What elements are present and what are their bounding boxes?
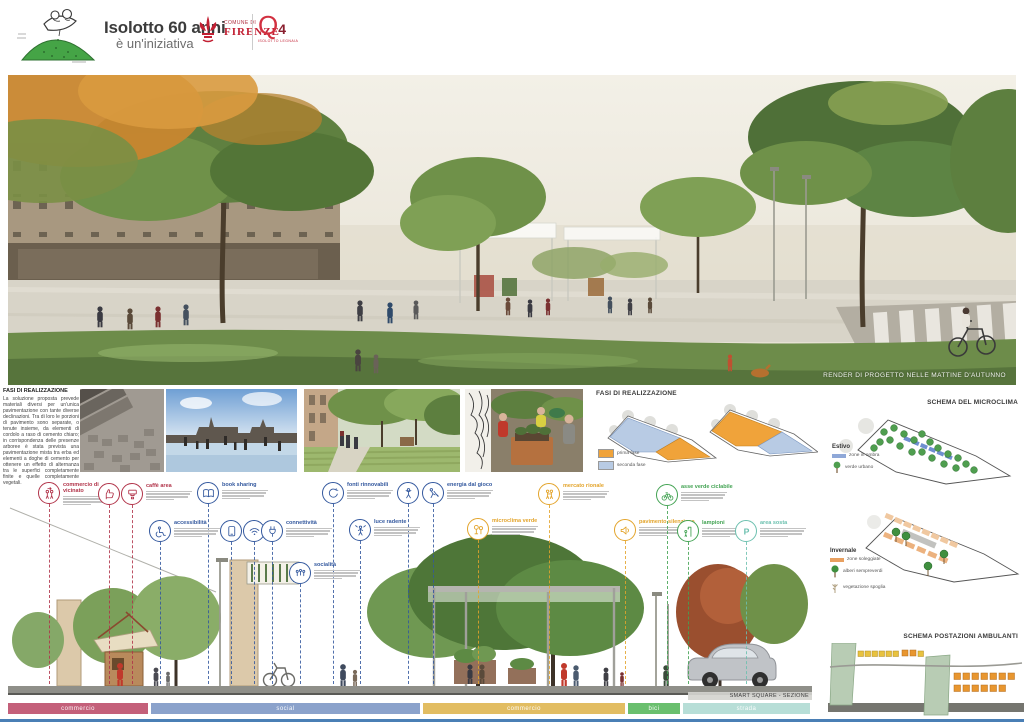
ombra-label: zone in ombra [849, 453, 879, 458]
feature-label-text: mercato rionale [563, 483, 604, 489]
feature-label: energia dal gioco [447, 482, 503, 499]
feature-label: mercato rionale [563, 483, 619, 500]
fasi-text-title: FASI DI REALIZZAZIONE [3, 388, 79, 394]
feature-label: book sharing [222, 482, 278, 499]
program-bar-segment: commercio [8, 703, 148, 714]
tree-legend-icon [832, 461, 842, 473]
spoglia-label: vegetazione spoglia [843, 585, 885, 590]
photo-community-gardening [465, 389, 583, 472]
feature-label-text: energia dal gioco [447, 482, 492, 488]
program-bar-label: commercio [61, 706, 95, 712]
feature-label-text: fonti rinnovabili [347, 482, 388, 488]
ambulanti-title: SCHEMA POSTAZIONI AMBULANTI [850, 633, 1018, 640]
feature-description-placeholder [347, 490, 403, 500]
feature-label-text: asse verde ciclabile [681, 484, 733, 490]
q4-logo: Q4 ISOLOTTO LEGNAIA [258, 14, 298, 43]
program-bar-label: strada [737, 706, 757, 712]
program-bar-segment: commercio [423, 703, 625, 714]
bare-tree-legend-icon [830, 581, 840, 594]
invernale-label: Invernale [830, 548, 885, 554]
microclima-estivo-legend: Estivo zone in ombra verde urbano [832, 444, 879, 473]
fase1-swatch [598, 449, 614, 458]
photo-water-mirror-plaza [166, 389, 297, 472]
feature-description-placeholder [563, 491, 619, 501]
feature-label: fonti rinnovabili [347, 482, 403, 499]
photo-stone-paving [80, 389, 164, 472]
ombra-swatch [832, 454, 846, 458]
sole-swatch [830, 558, 844, 562]
poster: Isolotto 60 anni è un'iniziativa COMUNE … [0, 0, 1024, 723]
ambulanti-diagram [828, 643, 1024, 717]
feature-label: caffè area [146, 483, 202, 500]
poster-bottom-edge [0, 719, 1024, 722]
program-bar-label: commercio [507, 706, 541, 712]
header-divider [252, 14, 253, 50]
photo-green-boulevard [304, 389, 460, 472]
q4-subtitle: ISOLOTTO LEGNAIA [258, 39, 298, 43]
isolotto-60-logo-icon [14, 4, 100, 66]
fase1-label: prima fase [617, 451, 639, 456]
program-bar-segment: bici [628, 703, 680, 714]
feature-description-placeholder [222, 490, 278, 500]
q4-letter: Q [258, 10, 278, 40]
feature-description-placeholder [447, 490, 503, 500]
feature-label: asse verde ciclabile [681, 484, 737, 501]
section-title: SMART SQUARE - SEZIONE [688, 692, 812, 700]
fase2-label: seconda fase [617, 463, 646, 468]
sole-label: zone soleggiate [847, 557, 881, 562]
program-bar-segment: social [151, 703, 420, 714]
program-bar-label: bici [648, 706, 659, 712]
program-bar-segment: strada [683, 703, 810, 714]
microclima-title: SCHEMA DEL MICROCLIMA [860, 399, 1018, 406]
verde-label: verde urbano [845, 465, 873, 470]
section-drawing [8, 500, 818, 700]
feature-description-placeholder [146, 491, 202, 501]
fasi-diagram-title: FASI DI REALIZZAZIONE [596, 390, 677, 397]
fasi-diagram-legend: prima fase seconda fase [598, 446, 646, 470]
feature-label-text: caffè area [146, 483, 172, 489]
fasi-text-block: FASI DI REALIZZAZIONE La soluzione propo… [3, 388, 79, 486]
microclima-invernale-legend: Invernale zone soleggiate alberi semprev… [830, 548, 885, 594]
evergreen-legend-icon [830, 565, 840, 578]
sempreverdi-label: alberi sempreverdi [843, 569, 882, 574]
program-bar-label: social [276, 706, 294, 712]
fase2-swatch [598, 461, 614, 470]
render-caption: RENDER DI PROGETTO NELLE MATTINE D'AUTUN… [823, 372, 1006, 379]
giglio-icon [196, 14, 220, 44]
q4-number: 4 [278, 21, 286, 37]
fasi-text-body: La soluzione proposta prevede materiali … [3, 396, 79, 486]
estivo-label: Estivo [832, 444, 879, 450]
main-render [8, 75, 1016, 385]
feature-label-text: book sharing [222, 482, 257, 488]
